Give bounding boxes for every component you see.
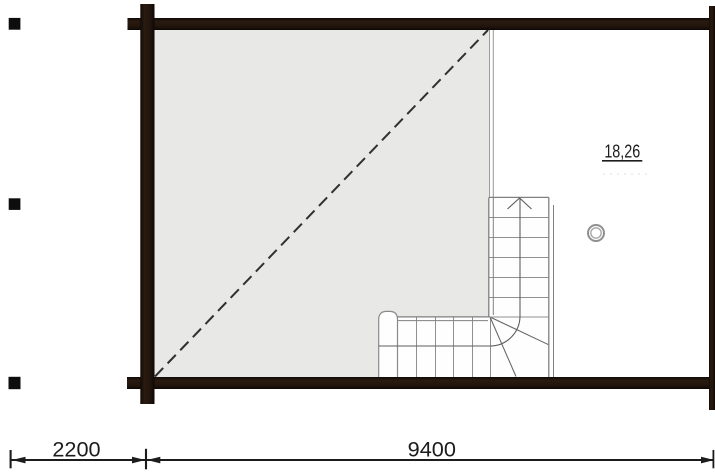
svg-text:18,26: 18,26 <box>604 142 640 162</box>
svg-text:2200: 2200 <box>52 437 100 462</box>
svg-text:9400: 9400 <box>408 437 456 462</box>
